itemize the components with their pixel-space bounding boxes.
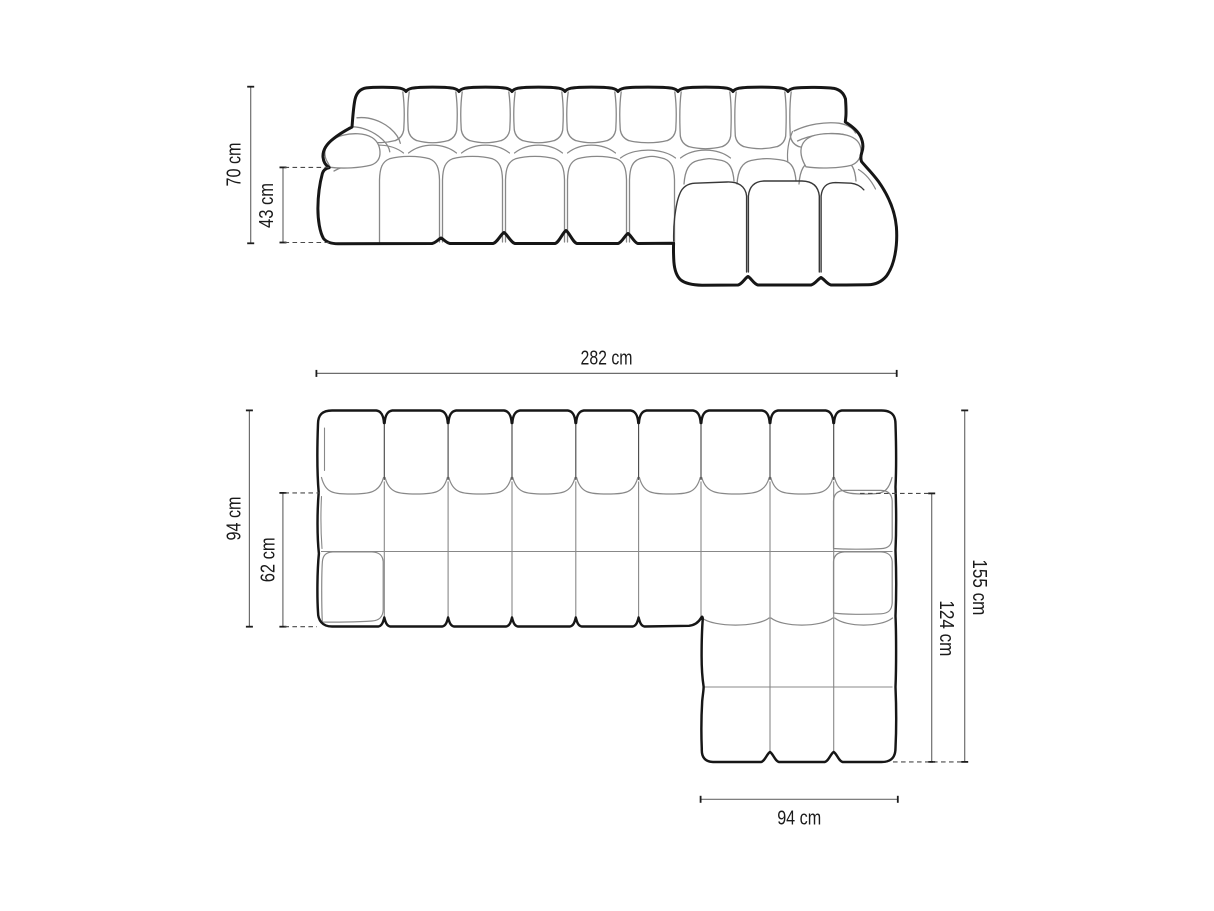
svg-text:70 cm: 70 cm [224, 143, 246, 187]
svg-text:282 cm: 282 cm [581, 348, 633, 370]
svg-text:155 cm: 155 cm [968, 559, 990, 615]
svg-text:124 cm: 124 cm [935, 600, 957, 656]
svg-text:94 cm: 94 cm [224, 497, 246, 541]
svg-text:62 cm: 62 cm [257, 537, 279, 582]
svg-text:94 cm: 94 cm [777, 808, 821, 830]
svg-text:43 cm: 43 cm [256, 183, 278, 228]
